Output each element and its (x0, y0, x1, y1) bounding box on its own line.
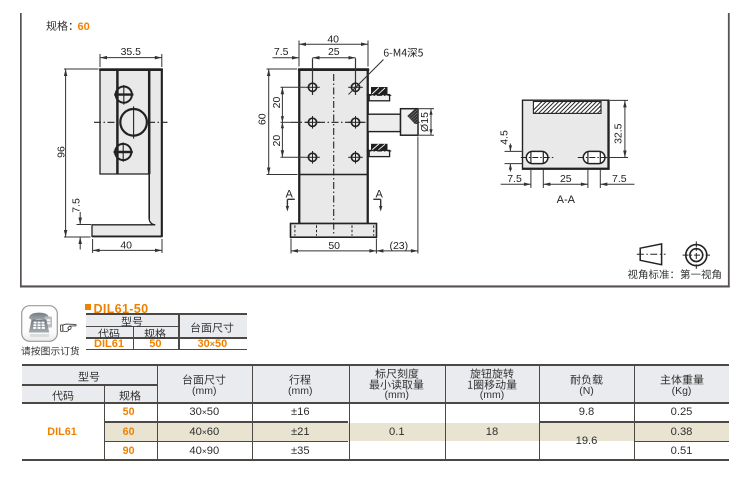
svg-text:50: 50 (328, 240, 340, 252)
svg-text:Ø15: Ø15 (419, 112, 431, 132)
svg-text:35.5: 35.5 (121, 46, 142, 58)
svg-text:4.5: 4.5 (498, 130, 510, 145)
svg-text:40: 40 (327, 33, 339, 45)
svg-text:(23): (23) (389, 240, 408, 252)
svg-text:25: 25 (328, 46, 340, 58)
svg-text:7.5: 7.5 (612, 173, 627, 185)
svg-text:96: 96 (56, 146, 68, 158)
svg-text:32.5: 32.5 (613, 123, 625, 144)
svg-text:20: 20 (271, 97, 283, 109)
svg-text:60: 60 (256, 113, 268, 125)
svg-text:40: 40 (120, 240, 132, 252)
svg-text:7.5: 7.5 (70, 198, 82, 213)
svg-text:A-A: A-A (557, 194, 576, 206)
svg-text:20: 20 (271, 135, 283, 147)
svg-text:25: 25 (560, 173, 572, 185)
svg-text:60: 60 (78, 21, 90, 33)
svg-text:7.5: 7.5 (507, 173, 522, 185)
svg-text:7.5: 7.5 (274, 46, 289, 58)
